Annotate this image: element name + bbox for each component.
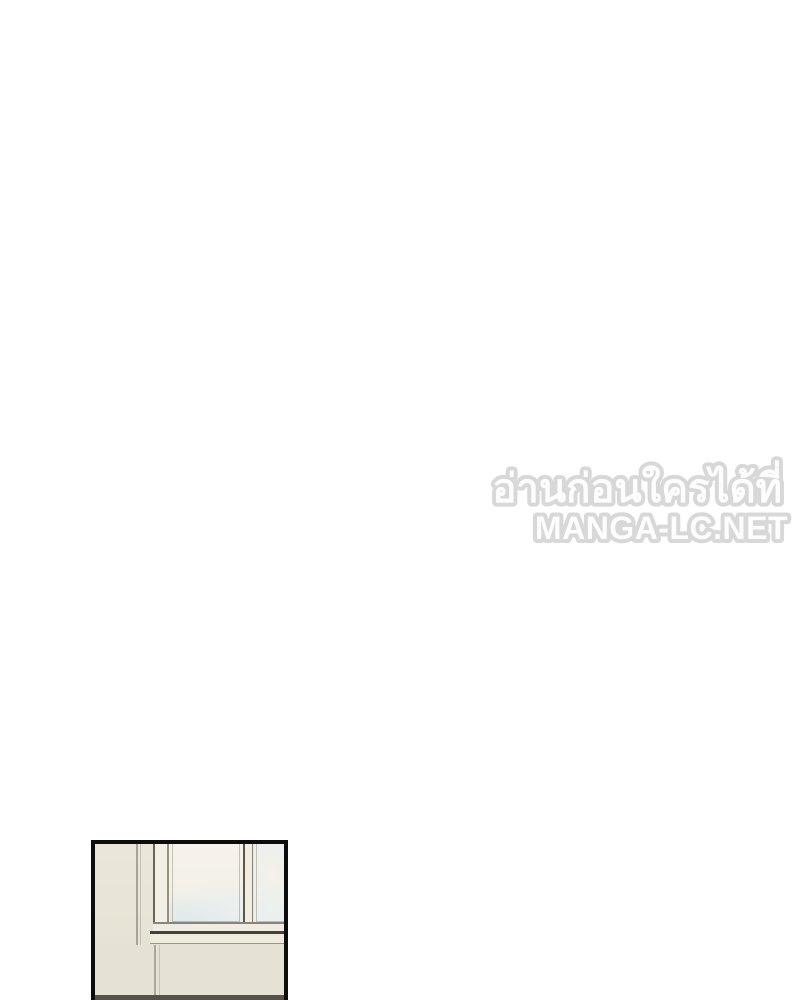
window-pane-right-inner-frame	[256, 844, 284, 922]
wall-panel-line-faint	[159, 945, 160, 995]
site-watermark: อ่านก่อนใครได้ที่ MANGA-LC.NET	[396, 446, 796, 550]
comic-panel	[91, 840, 288, 1000]
window	[153, 844, 284, 925]
watermark-site-text: MANGA-LC.NET	[535, 510, 788, 546]
window-pane-right-sky	[254, 844, 284, 925]
comic-page: อ่านก่อนใครได้ที่ MANGA-LC.NET	[0, 0, 800, 1000]
window-sill	[150, 934, 284, 944]
window-frame-left	[153, 844, 169, 925]
watermark-thai-text: อ่านก่อนใครได้ที่	[492, 460, 782, 511]
panel-bottom-dark-strip	[95, 995, 284, 1000]
window-mullion	[243, 844, 253, 925]
window-bottom-rail	[153, 922, 284, 931]
window-pane-left-inner-frame	[172, 844, 240, 922]
wall-panel-line	[154, 945, 156, 995]
window-pane-left-sky	[169, 844, 243, 925]
wall-below-sill	[95, 945, 284, 995]
